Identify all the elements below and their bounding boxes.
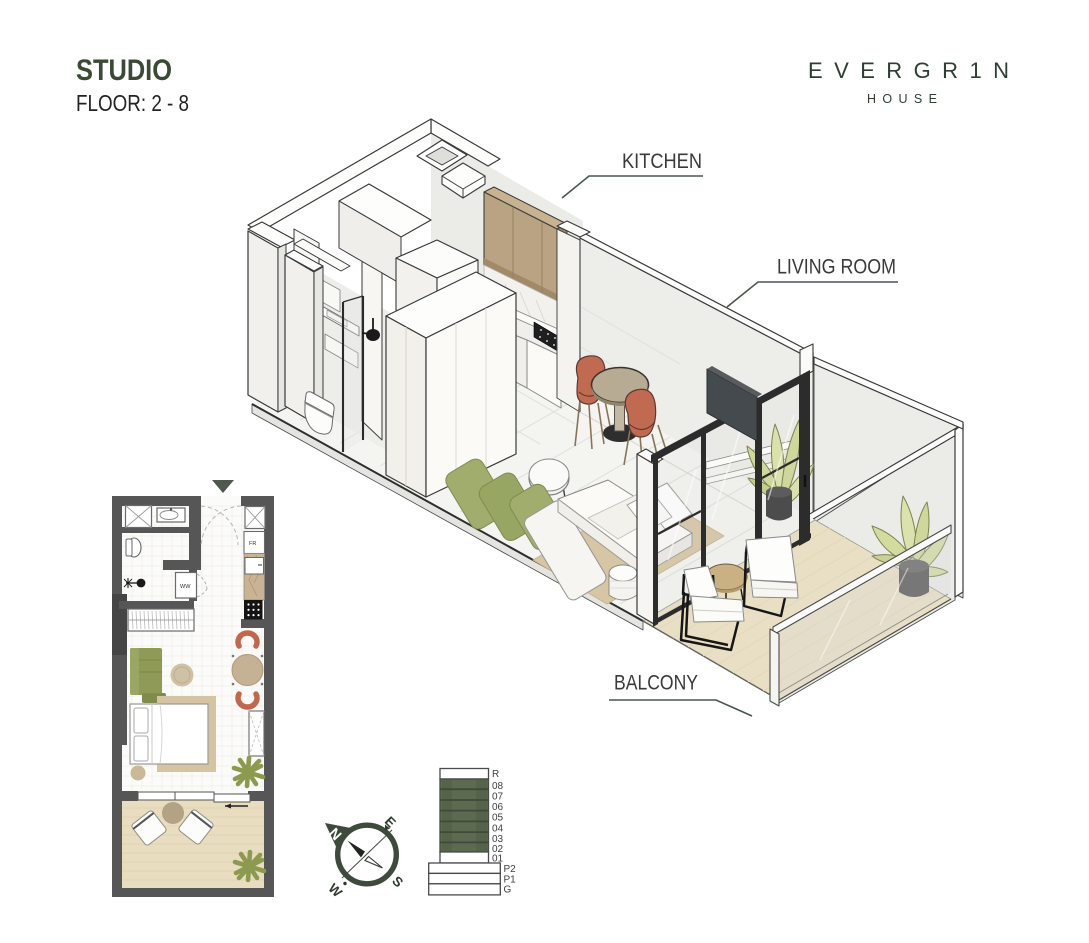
svg-text:08: 08 xyxy=(492,781,504,792)
svg-text:LIVING ROOM: LIVING ROOM xyxy=(777,256,896,279)
svg-text:KITCHEN: KITCHEN xyxy=(622,150,702,173)
svg-text:05: 05 xyxy=(492,813,504,824)
svg-text:EVERGR1N: EVERGR1N xyxy=(808,58,1019,83)
svg-text:07: 07 xyxy=(492,792,504,803)
svg-text:FLOOR: 2 - 8: FLOOR: 2 - 8 xyxy=(76,90,189,116)
svg-text:01: 01 xyxy=(492,854,504,865)
svg-text:WW: WW xyxy=(180,584,191,590)
svg-text:G: G xyxy=(504,885,512,896)
svg-text:P1: P1 xyxy=(504,874,517,885)
svg-text:STUDIO: STUDIO xyxy=(76,54,172,87)
svg-text:FR: FR xyxy=(249,541,256,547)
svg-text:R: R xyxy=(492,769,499,780)
svg-text:06: 06 xyxy=(492,802,504,813)
svg-text:04: 04 xyxy=(492,823,504,834)
svg-text:BALCONY: BALCONY xyxy=(614,672,698,695)
svg-text:HOUSE: HOUSE xyxy=(867,92,941,106)
